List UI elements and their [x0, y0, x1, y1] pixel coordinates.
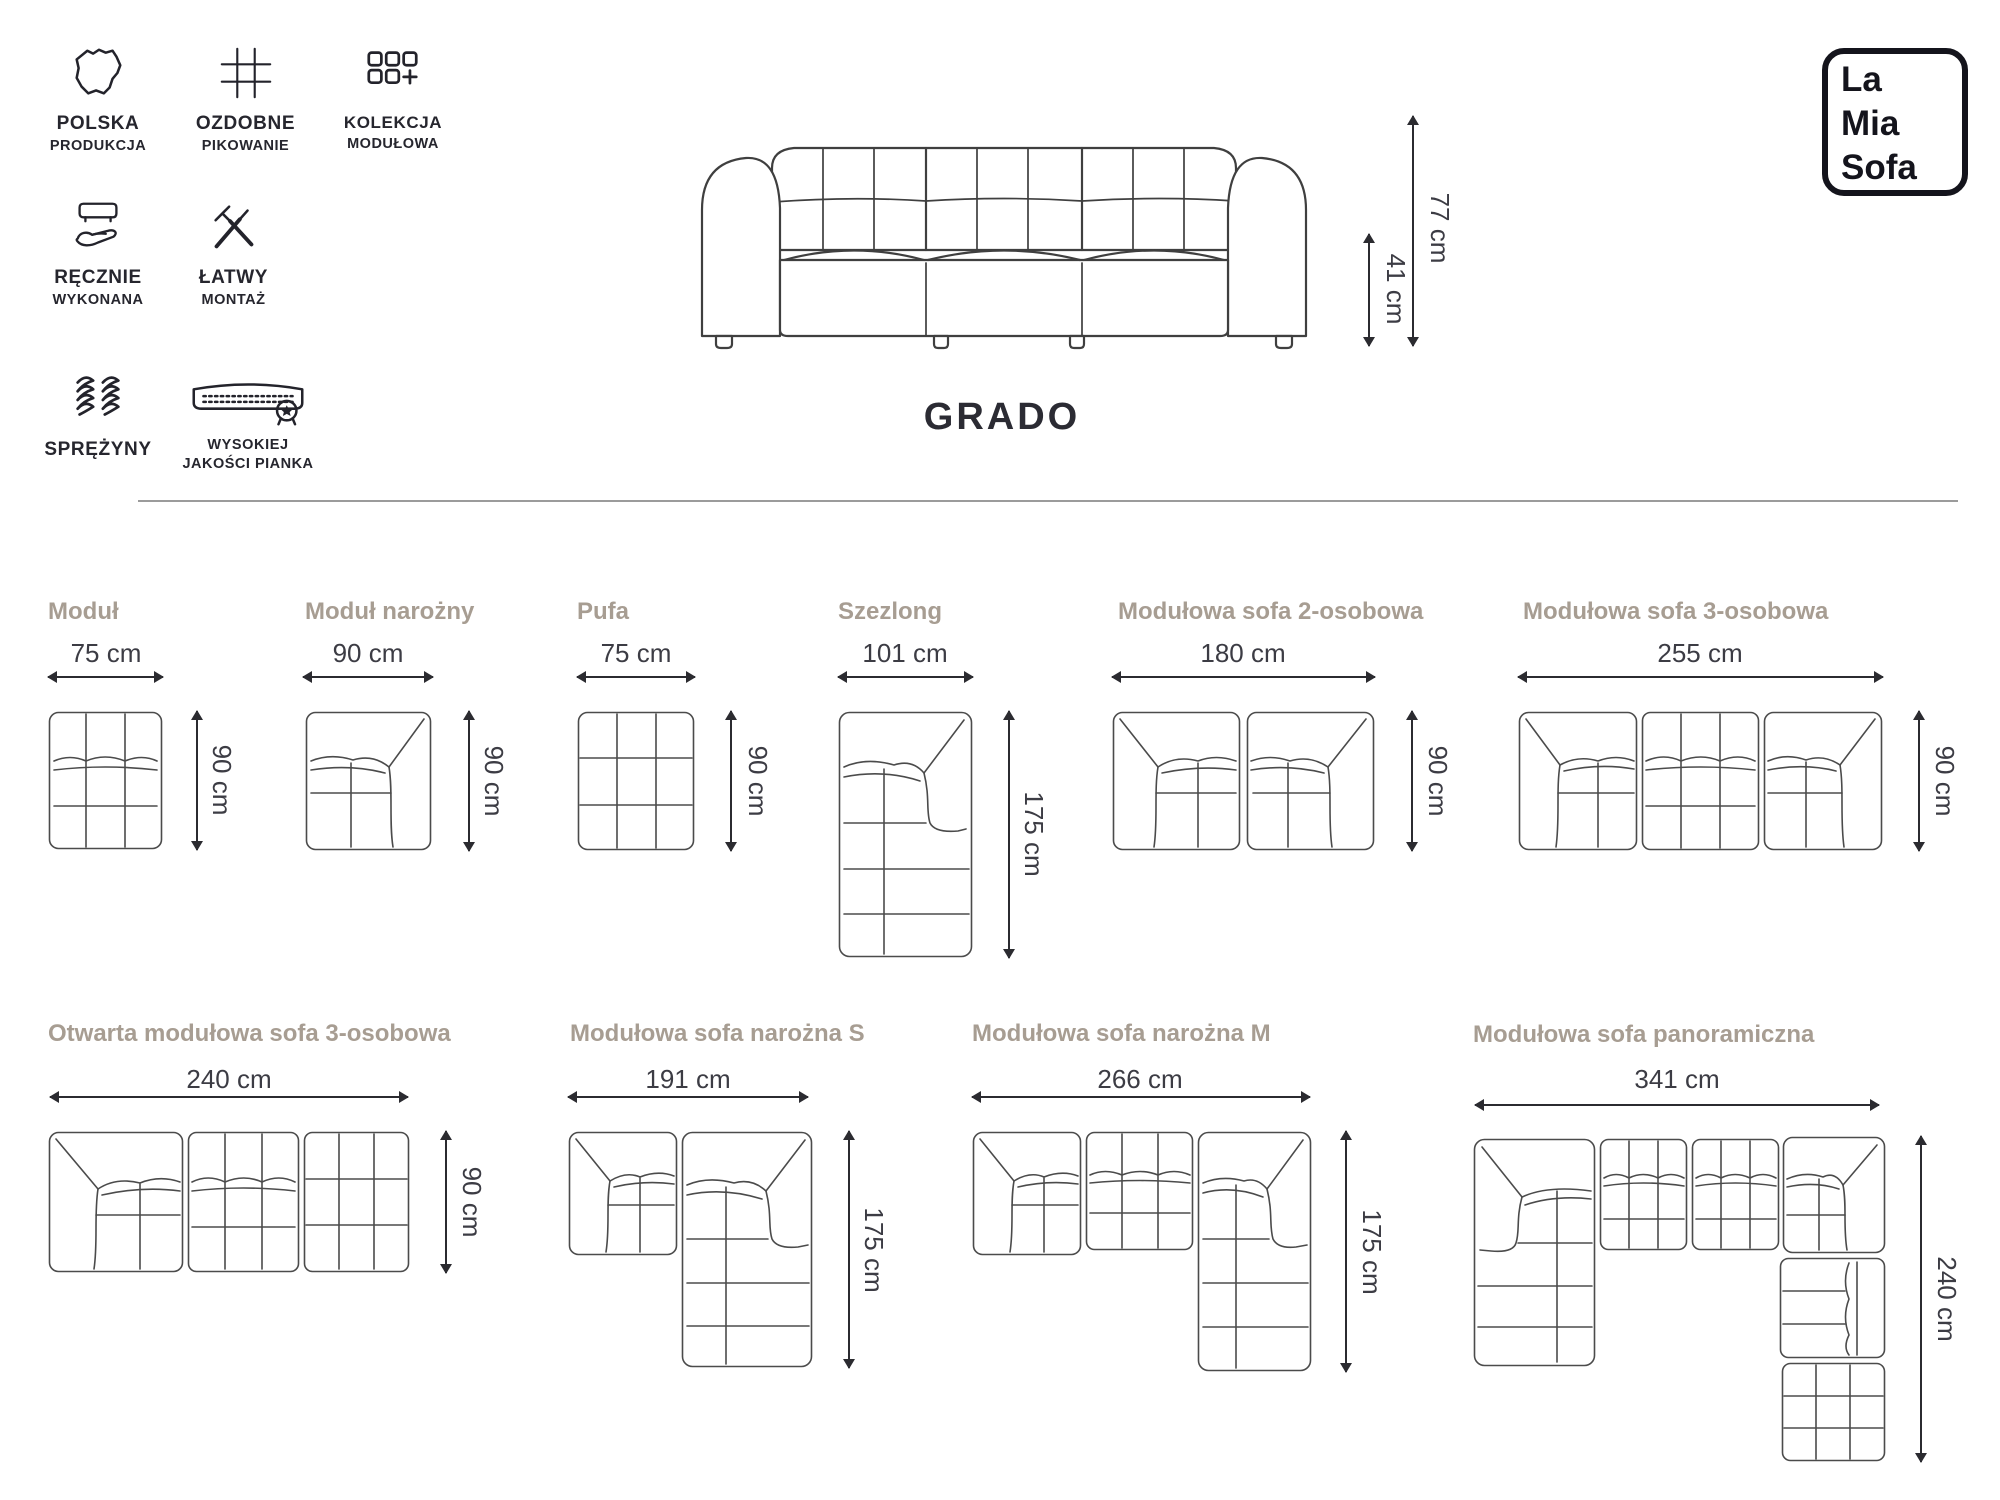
depth-arrow	[196, 711, 198, 850]
logo-line-3: Sofa	[1841, 146, 1962, 190]
sofa-seat-height-label: 41 cm	[1380, 254, 1411, 325]
depth-arrow	[1411, 711, 1413, 851]
module-card-szezlong: Szezlong 101 cm 175 cm	[830, 590, 1060, 990]
width-arrow	[838, 676, 973, 678]
module-card-panoramiczna: Modułowa sofa panoramiczna 341 cm	[1462, 1012, 1992, 1492]
module-top-view	[838, 711, 973, 958]
module-width-label: 266 cm	[1097, 1064, 1182, 1095]
feature-sublabel: PIKOWANIE	[202, 138, 289, 154]
feature-label: SPRĘŻYNY	[44, 439, 151, 461]
module-width-label: 75 cm	[71, 638, 142, 669]
brand-logo: La Mia Sofa	[1822, 48, 1968, 196]
width-arrow	[48, 676, 163, 678]
feature-sprezyny: SPRĘŻYNY	[28, 368, 168, 461]
depth-arrow	[1345, 1131, 1347, 1372]
width-arrow	[1518, 676, 1883, 678]
depth-arrow	[445, 1131, 447, 1273]
module-width-label: 191 cm	[645, 1064, 730, 1095]
module-depth-label: 90 cm	[1422, 746, 1453, 817]
module-depth-label: 90 cm	[478, 746, 509, 817]
module-width-label: 240 cm	[186, 1064, 271, 1095]
module-depth-label: 90 cm	[1929, 746, 1960, 817]
section-divider	[138, 500, 1958, 502]
product-title: GRADO	[924, 396, 1080, 439]
width-arrow	[50, 1096, 408, 1098]
module-depth-label: 90 cm	[206, 745, 237, 816]
logo-line-2: Mia	[1841, 102, 1962, 146]
module-top-view	[568, 1131, 813, 1368]
module-top-view	[48, 711, 163, 850]
module-depth-label: 175 cm	[1018, 791, 1049, 876]
feature-label: OZDOBNE	[196, 113, 295, 135]
feature-label: POLSKA	[57, 113, 140, 135]
module-card-narozna-m: Modułowa sofa narożna M 266 cm 175 cm	[962, 1012, 1402, 1412]
feature-latwy-montaz: ŁATWY MONTAŻ	[166, 196, 301, 308]
module-depth-label: 175 cm	[858, 1207, 889, 1292]
module-title: Pufa	[577, 598, 629, 626]
module-card-sofa-3-osobowa: Modułowa sofa 3-osobowa 255 cm 90 cm	[1515, 590, 1955, 890]
module-card-modul: Moduł 75 cm 90 cm	[40, 590, 290, 890]
module-depth-label: 240 cm	[1931, 1256, 1962, 1341]
module-card-sofa-2-osobowa: Modułowa sofa 2-osobowa 180 cm 90 cm	[1110, 590, 1450, 890]
module-width-label: 180 cm	[1200, 638, 1285, 669]
feature-wysokiej-jakosci-pianka: WYSOKIEJ JAKOŚCI PIANKA	[168, 368, 328, 472]
module-title: Modułowa sofa narożna S	[570, 1020, 865, 1048]
module-width-label: 75 cm	[601, 638, 672, 669]
width-arrow	[1112, 676, 1375, 678]
module-title: Modułowa sofa narożna M	[972, 1020, 1271, 1048]
easy-assembly-icon	[203, 196, 265, 258]
feature-sublabel: MONTAŻ	[202, 292, 266, 308]
module-title: Modułowa sofa 2-osobowa	[1118, 598, 1423, 626]
module-top-view	[972, 1131, 1312, 1372]
module-card-pufa: Pufa 75 cm 90 cm	[570, 590, 800, 890]
feature-sublabel: PRODUKCJA	[50, 138, 146, 154]
springs-icon	[67, 368, 129, 430]
module-card-modul-narozny: Moduł narożny 90 cm 90 cm	[300, 590, 540, 890]
sofa-seat-height-arrow	[1368, 234, 1370, 346]
module-title: Moduł	[48, 598, 119, 626]
feature-label: RĘCZNIE	[54, 267, 142, 289]
poland-map-icon	[67, 42, 129, 104]
depth-arrow	[730, 711, 732, 851]
width-arrow	[568, 1096, 808, 1098]
module-top-view	[48, 1131, 410, 1273]
module-top-view	[305, 711, 432, 851]
feature-sublabel: WYKONANA	[53, 292, 144, 308]
module-depth-label: 90 cm	[742, 746, 773, 817]
feature-sublabel: MODUŁOWA	[347, 136, 439, 152]
module-title: Szezlong	[838, 598, 942, 626]
depth-arrow	[1920, 1136, 1922, 1462]
width-arrow	[972, 1096, 1310, 1098]
quilting-grid-icon	[215, 42, 277, 104]
module-title: Modułowa sofa panoramiczna	[1473, 1021, 1814, 1049]
module-title: Otwarta modułowa sofa 3-osobowa	[48, 1020, 451, 1048]
modular-collection-icon	[362, 42, 424, 104]
module-top-view	[1518, 711, 1883, 851]
feature-kolekcja-modulowa: KOLEKCJA MODUŁOWA	[318, 42, 468, 152]
module-top-view	[577, 711, 695, 851]
module-width-label: 101 cm	[862, 638, 947, 669]
depth-arrow	[468, 711, 470, 851]
feature-label: KOLEKCJA	[344, 113, 442, 133]
feature-label: WYSOKIEJ	[207, 437, 288, 453]
feature-polska-produkcja: POLSKA PRODUKCJA	[28, 42, 168, 154]
depth-arrow	[1008, 711, 1010, 958]
module-top-view	[1473, 1131, 1886, 1462]
feature-label: ŁATWY	[199, 267, 268, 289]
logo-line-1: La	[1841, 58, 1962, 102]
module-depth-label: 175 cm	[1356, 1209, 1387, 1294]
module-depth-label: 90 cm	[456, 1167, 487, 1238]
module-width-label: 255 cm	[1657, 638, 1742, 669]
sofa-height-arrow	[1412, 116, 1414, 346]
width-arrow	[577, 676, 695, 678]
foam-quality-icon	[186, 368, 310, 430]
feature-sublabel: JAKOŚCI PIANKA	[182, 456, 313, 472]
sofa-front-view-drawing	[672, 90, 1336, 352]
module-card-otwarta-3-osobowa: Otwarta modułowa sofa 3-osobowa 240 cm 9…	[40, 1012, 540, 1312]
module-card-narozna-s: Modułowa sofa narożna S 191 cm 175 cm	[560, 1012, 900, 1412]
width-arrow	[303, 676, 433, 678]
depth-arrow	[1918, 711, 1920, 851]
module-width-label: 90 cm	[333, 638, 404, 669]
feature-ozdobne-pikowanie: OZDOBNE PIKOWANIE	[173, 42, 318, 154]
sofa-height-label: 77 cm	[1424, 193, 1455, 264]
depth-arrow	[848, 1131, 850, 1368]
module-top-view	[1112, 711, 1375, 851]
feature-recznie-wykonana: RĘCZNIE WYKONANA	[28, 196, 168, 308]
module-title: Modułowa sofa 3-osobowa	[1523, 598, 1828, 626]
handmade-icon	[67, 196, 129, 258]
module-title: Moduł narożny	[305, 598, 474, 626]
width-arrow	[1475, 1104, 1879, 1106]
module-width-label: 341 cm	[1634, 1064, 1719, 1095]
